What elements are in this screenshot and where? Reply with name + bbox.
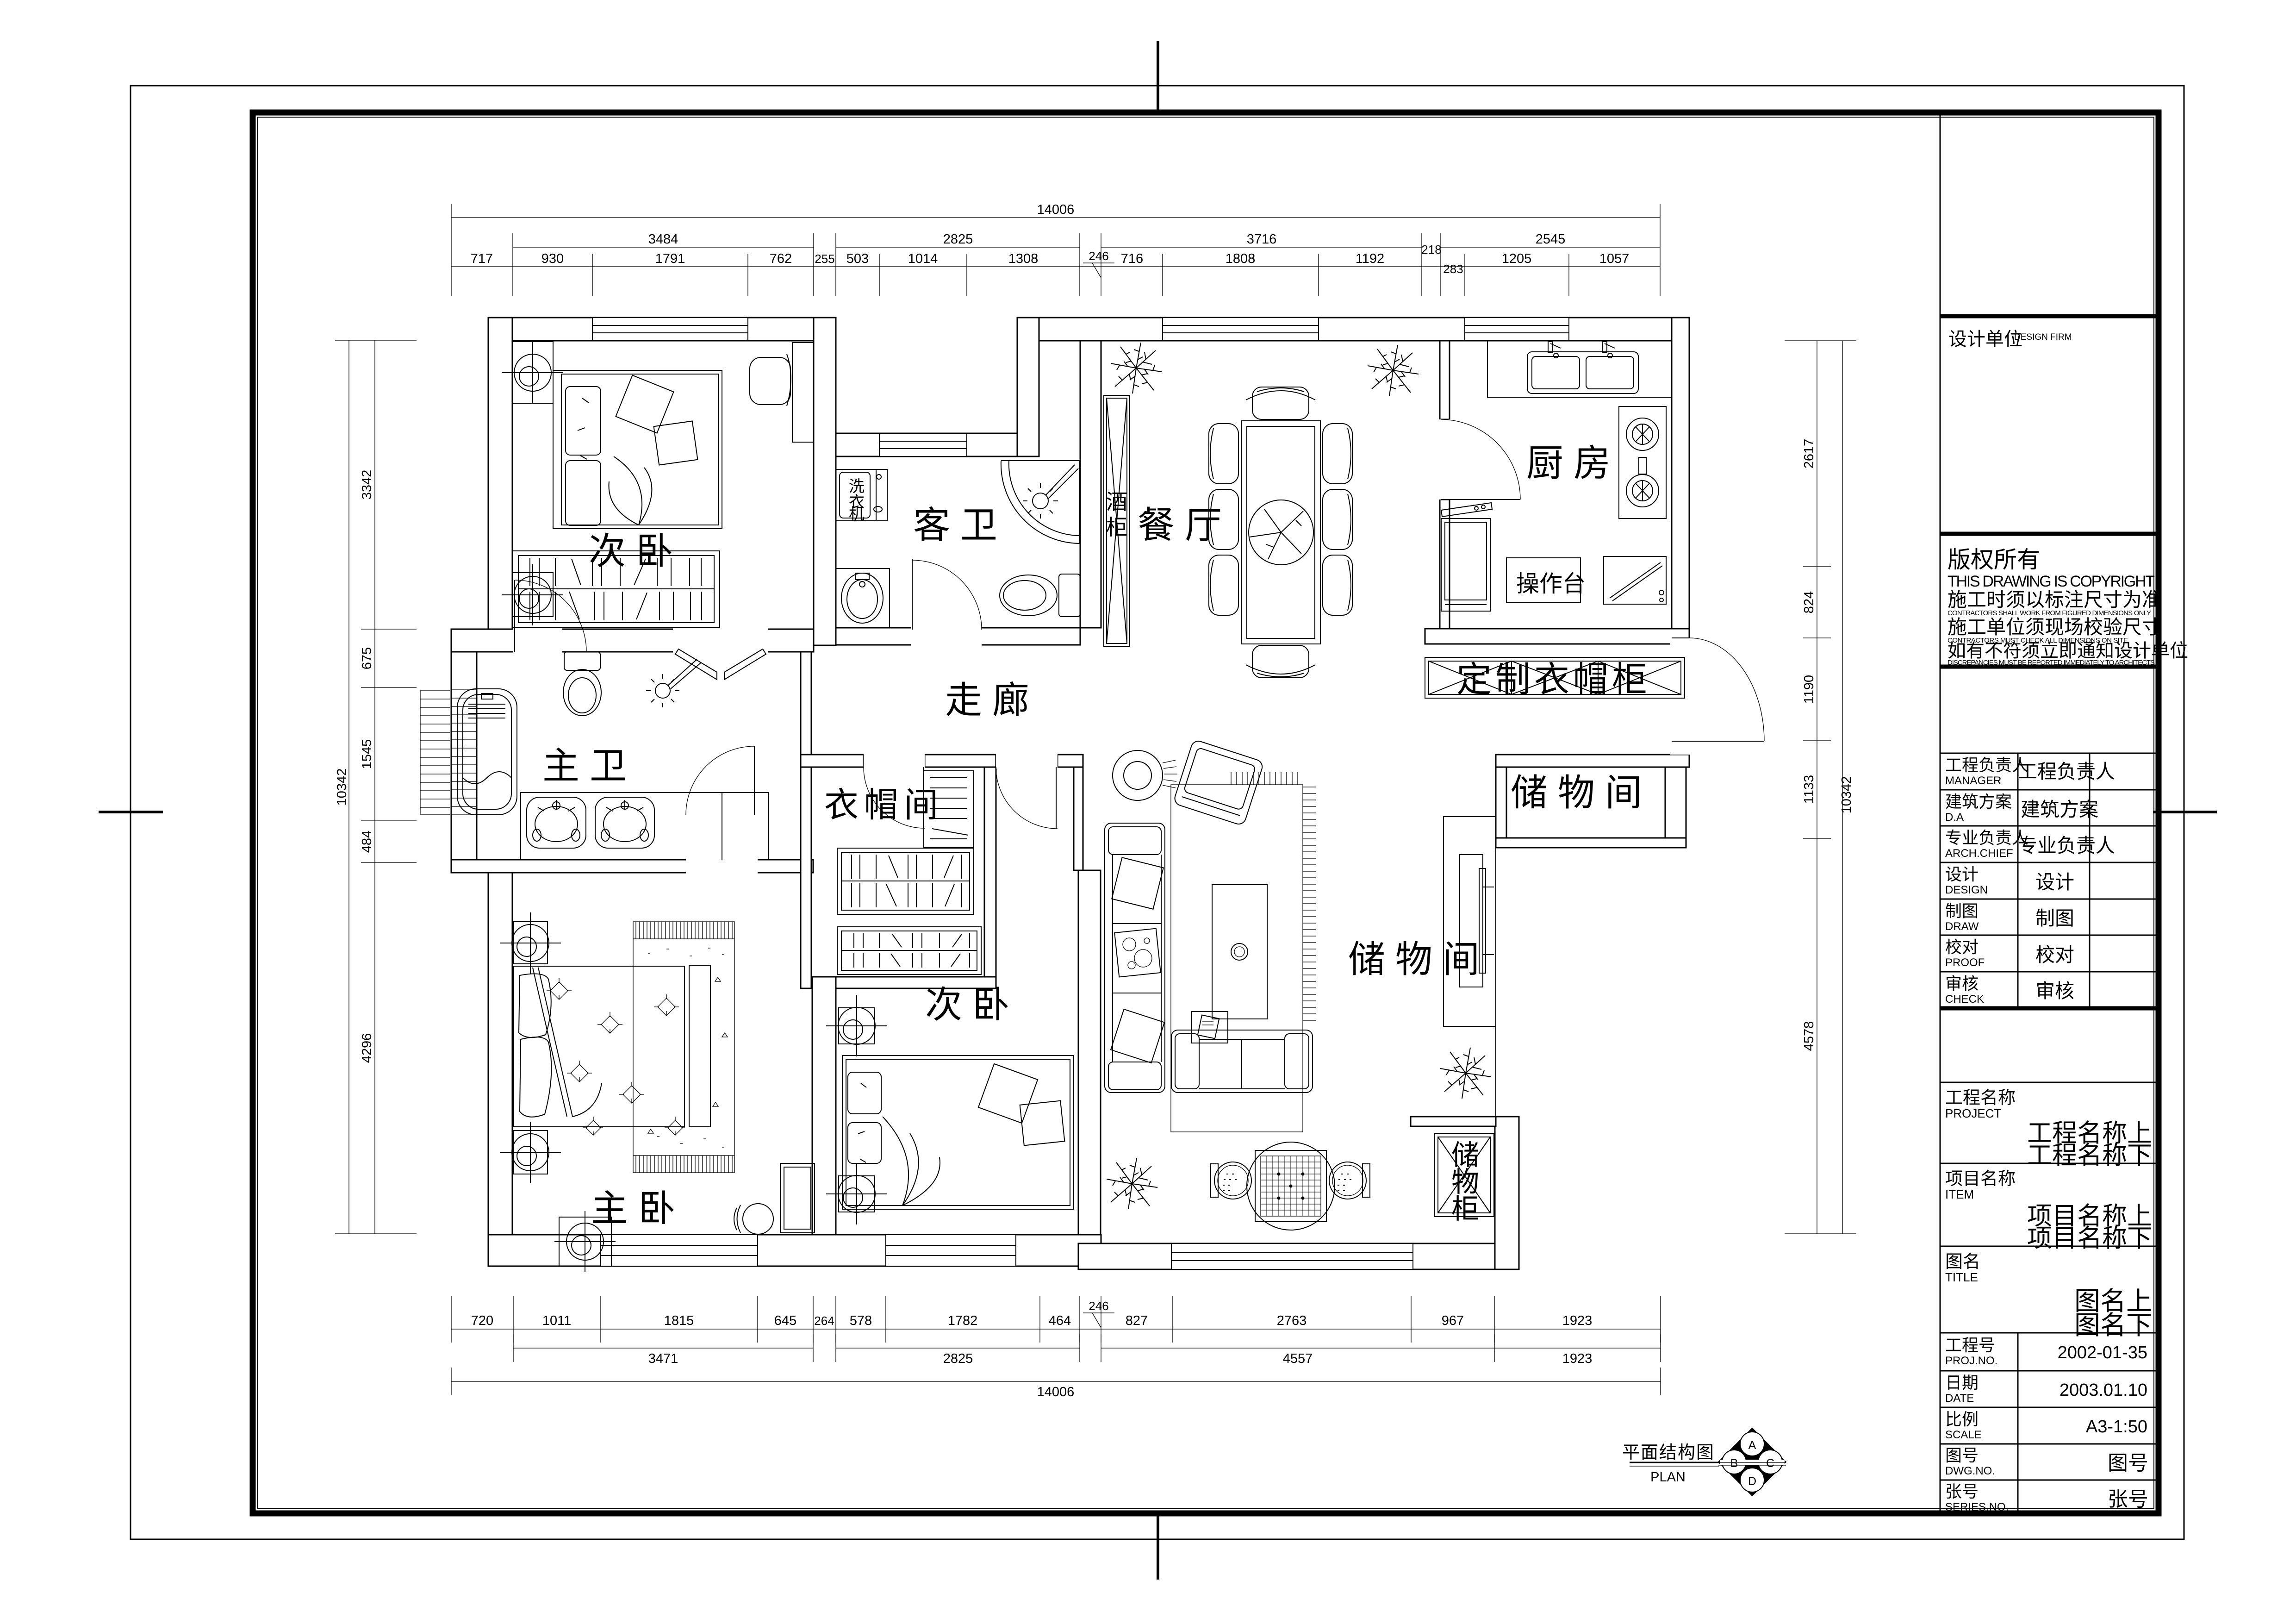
svg-text:版权所有: 版权所有 xyxy=(1948,547,2040,573)
svg-text:2003.01.10: 2003.01.10 xyxy=(2060,1380,2147,1400)
svg-text:客卫: 客卫 xyxy=(913,505,1008,546)
svg-text:1057: 1057 xyxy=(1599,251,1630,266)
svg-text:2617: 2617 xyxy=(1802,439,1817,469)
svg-text:DISCREPANCIES MUST BE REPORTED: DISCREPANCIES MUST BE REPORTED IMMEDIATE… xyxy=(1948,659,2155,667)
svg-text:TITLE: TITLE xyxy=(1945,1270,1978,1284)
svg-text:工程名称下: 工程名称下 xyxy=(2027,1142,2152,1169)
svg-text:3342: 3342 xyxy=(360,470,374,500)
svg-text:次卧: 次卧 xyxy=(925,984,1020,1025)
svg-text:10342: 10342 xyxy=(335,768,349,806)
svg-text:1192: 1192 xyxy=(1356,251,1384,266)
svg-text:工程负责人: 工程负责人 xyxy=(1945,756,2028,775)
svg-text:餐厅: 餐厅 xyxy=(1138,505,1232,546)
svg-text:967: 967 xyxy=(1442,1313,1464,1328)
svg-text:操作台: 操作台 xyxy=(1516,571,1586,597)
svg-text:283: 283 xyxy=(1443,262,1463,276)
svg-text:张号: 张号 xyxy=(1945,1482,1979,1501)
svg-text:578: 578 xyxy=(850,1313,872,1328)
svg-text:246: 246 xyxy=(1089,249,1108,263)
svg-text:DRAW: DRAW xyxy=(1945,920,1979,933)
svg-text:PROJECT: PROJECT xyxy=(1945,1106,2001,1120)
svg-text:SERIES.NO.: SERIES.NO. xyxy=(1945,1501,2009,1513)
svg-text:建筑方案: 建筑方案 xyxy=(2021,799,2098,820)
svg-text:审核: 审核 xyxy=(1945,974,1979,993)
svg-text:工程名称: 工程名称 xyxy=(1945,1088,2016,1108)
svg-text:645: 645 xyxy=(774,1313,796,1328)
svg-text:1923: 1923 xyxy=(1562,1313,1593,1328)
svg-text:机: 机 xyxy=(849,506,865,523)
svg-text:图名: 图名 xyxy=(1945,1252,1980,1272)
svg-text:ARCH.CHIEF: ARCH.CHIEF xyxy=(1945,847,2013,860)
svg-text:4557: 4557 xyxy=(1283,1351,1313,1366)
svg-text:CHECK: CHECK xyxy=(1945,993,1984,1006)
svg-text:工程负责人: 工程负责人 xyxy=(2018,761,2115,782)
svg-text:14006: 14006 xyxy=(1037,1385,1075,1399)
svg-text:C: C xyxy=(1766,1457,1774,1470)
svg-text:14006: 14006 xyxy=(1037,202,1075,217)
svg-text:1923: 1923 xyxy=(1562,1351,1593,1366)
svg-text:930: 930 xyxy=(541,251,564,266)
svg-text:A: A xyxy=(1748,1439,1756,1452)
svg-text:柜: 柜 xyxy=(1106,515,1127,539)
svg-text:A3-1:50: A3-1:50 xyxy=(2086,1417,2147,1437)
svg-text:厨房: 厨房 xyxy=(1526,443,1621,484)
svg-text:1133: 1133 xyxy=(1802,775,1817,804)
svg-text:1815: 1815 xyxy=(664,1313,694,1328)
svg-text:503: 503 xyxy=(846,251,869,266)
svg-text:专业负责人: 专业负责人 xyxy=(2018,835,2115,856)
svg-text:项目名称: 项目名称 xyxy=(1945,1169,2016,1189)
svg-text:2763: 2763 xyxy=(1277,1313,1307,1328)
svg-text:824: 824 xyxy=(1802,591,1817,613)
svg-text:1808: 1808 xyxy=(1226,251,1256,266)
svg-text:校对: 校对 xyxy=(1945,937,1979,956)
svg-text:717: 717 xyxy=(471,251,493,266)
svg-text:柜: 柜 xyxy=(1451,1193,1479,1224)
svg-text:洗: 洗 xyxy=(849,478,865,495)
svg-text:储物间: 储物间 xyxy=(1511,772,1652,813)
svg-text:1014: 1014 xyxy=(908,251,938,266)
svg-text:264: 264 xyxy=(814,1314,834,1328)
svg-text:校对: 校对 xyxy=(2035,944,2074,966)
svg-text:1545: 1545 xyxy=(360,739,374,769)
svg-text:PROOF: PROOF xyxy=(1945,956,1985,969)
svg-text:2002-01-35: 2002-01-35 xyxy=(2058,1343,2147,1362)
svg-text:张号: 张号 xyxy=(2108,1488,2148,1511)
svg-text:主卫: 主卫 xyxy=(542,745,637,787)
svg-text:3716: 3716 xyxy=(1247,232,1277,247)
svg-text:DWG.NO.: DWG.NO. xyxy=(1945,1465,1995,1477)
svg-text:10342: 10342 xyxy=(1839,776,1854,814)
svg-text:MANAGER: MANAGER xyxy=(1945,775,2001,787)
svg-text:1308: 1308 xyxy=(1008,251,1039,266)
svg-text:246: 246 xyxy=(1089,1299,1108,1313)
svg-text:工程号: 工程号 xyxy=(1945,1336,1995,1355)
svg-text:DATE: DATE xyxy=(1945,1392,1974,1405)
svg-text:2825: 2825 xyxy=(943,1351,973,1366)
svg-text:720: 720 xyxy=(471,1313,493,1328)
svg-text:施工时须以标注尺寸为准: 施工时须以标注尺寸为准 xyxy=(1948,589,2161,611)
svg-text:SCALE: SCALE xyxy=(1945,1429,1982,1441)
svg-text:716: 716 xyxy=(1121,251,1143,266)
svg-text:464: 464 xyxy=(1049,1313,1071,1328)
svg-text:4296: 4296 xyxy=(360,1033,374,1063)
svg-text:PLAN: PLAN xyxy=(1650,1470,1686,1485)
svg-text:1782: 1782 xyxy=(948,1313,978,1328)
svg-text:1190: 1190 xyxy=(1802,675,1817,704)
svg-text:比例: 比例 xyxy=(1945,1410,1979,1429)
svg-text:827: 827 xyxy=(1126,1313,1148,1328)
svg-text:B: B xyxy=(1730,1457,1738,1470)
svg-text:THIS DRAWING IS COPYRIGHT: THIS DRAWING IS COPYRIGHT xyxy=(1948,573,2155,590)
svg-text:主卧: 主卧 xyxy=(591,1188,685,1229)
svg-text:酒: 酒 xyxy=(1106,490,1127,514)
svg-text:D: D xyxy=(1748,1475,1756,1488)
svg-text:D.A: D.A xyxy=(1945,811,1964,824)
svg-text:675: 675 xyxy=(360,647,374,669)
svg-text:762: 762 xyxy=(770,251,792,266)
svg-text:3484: 3484 xyxy=(648,232,678,247)
svg-text:制图: 制图 xyxy=(2035,907,2074,929)
svg-text:图号: 图号 xyxy=(2108,1452,2148,1474)
svg-text:日期: 日期 xyxy=(1945,1373,1979,1392)
svg-text:218: 218 xyxy=(1421,243,1441,256)
svg-text:建筑方案: 建筑方案 xyxy=(1945,792,2012,811)
svg-text:专业负责人: 专业负责人 xyxy=(1945,828,2028,847)
svg-text:制图: 制图 xyxy=(1945,901,1979,920)
svg-text:DESIGN: DESIGN xyxy=(1945,884,1988,896)
svg-text:物: 物 xyxy=(1451,1167,1479,1198)
svg-text:1205: 1205 xyxy=(1502,251,1532,266)
svg-text:1791: 1791 xyxy=(655,251,685,266)
svg-text:如有不符须立即通知设计单位: 如有不符须立即通知设计单位 xyxy=(1948,641,2188,661)
svg-text:PROJ.NO.: PROJ.NO. xyxy=(1945,1355,1997,1367)
svg-text:255: 255 xyxy=(815,252,834,266)
svg-text:走廊: 走廊 xyxy=(945,680,1039,721)
svg-text:项目名称下: 项目名称下 xyxy=(2027,1224,2152,1252)
svg-text:设计单位: 设计单位 xyxy=(1948,329,2022,350)
svg-text:2545: 2545 xyxy=(1536,232,1566,247)
svg-text:储: 储 xyxy=(1451,1140,1479,1171)
svg-text:审核: 审核 xyxy=(2035,980,2074,1002)
svg-text:设计: 设计 xyxy=(1945,865,1979,884)
svg-text:储物间: 储物间 xyxy=(1348,939,1490,980)
svg-text:2825: 2825 xyxy=(943,232,973,247)
svg-text:1011: 1011 xyxy=(542,1313,571,1328)
svg-text:484: 484 xyxy=(360,831,374,853)
svg-text:施工单位须现场校验尺寸: 施工单位须现场校验尺寸 xyxy=(1948,616,2161,638)
svg-text:平面结构图: 平面结构图 xyxy=(1622,1443,1715,1462)
svg-text:图名下: 图名下 xyxy=(2074,1311,2152,1340)
svg-text:DESIGN FIRM: DESIGN FIRM xyxy=(2014,332,2072,342)
svg-text:4578: 4578 xyxy=(1802,1021,1817,1051)
svg-text:衣帽间: 衣帽间 xyxy=(824,786,944,824)
svg-text:图号: 图号 xyxy=(1945,1446,1979,1465)
svg-text:ITEM: ITEM xyxy=(1945,1187,1974,1201)
svg-text:定制衣帽柜: 定制衣帽柜 xyxy=(1456,660,1651,700)
svg-text:3471: 3471 xyxy=(648,1351,678,1366)
svg-text:设计: 设计 xyxy=(2035,871,2074,893)
